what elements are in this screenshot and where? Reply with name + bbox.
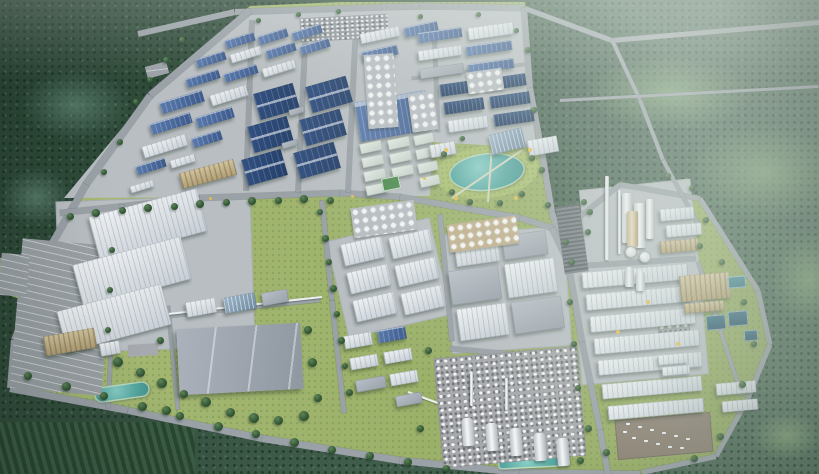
tree <box>529 155 535 161</box>
storage-silo <box>461 418 475 447</box>
preheater-tower <box>627 211 638 247</box>
water-treatment-basin <box>728 275 747 289</box>
chimney <box>505 378 508 410</box>
tree <box>105 327 111 333</box>
tree <box>545 202 551 208</box>
tree <box>113 357 123 367</box>
tree <box>366 452 374 460</box>
south-road <box>520 469 640 474</box>
tank-farm <box>407 91 438 132</box>
tree <box>603 449 610 456</box>
tree <box>176 412 184 420</box>
tree <box>719 259 725 265</box>
tree <box>179 37 185 43</box>
tree <box>138 402 147 411</box>
warehouse <box>448 265 502 306</box>
flower-bed <box>209 197 212 200</box>
chimney <box>470 372 473 406</box>
tree <box>467 199 473 205</box>
flower-bed <box>351 195 354 198</box>
storage-silo <box>509 428 523 457</box>
tree <box>338 337 345 344</box>
tree <box>575 385 581 391</box>
tree <box>201 397 211 407</box>
tree <box>300 195 308 203</box>
tree <box>689 185 695 191</box>
flower-bed <box>676 342 680 346</box>
car <box>632 437 636 439</box>
tree <box>290 438 299 447</box>
tree <box>563 239 569 245</box>
tree <box>342 363 348 369</box>
storage-silo <box>556 438 570 467</box>
tree <box>308 358 317 367</box>
tree <box>133 99 139 105</box>
water-treatment-basin <box>744 329 759 341</box>
meadow-patch <box>20 70 130 140</box>
tree <box>585 425 592 432</box>
tree <box>249 413 259 423</box>
flower-bed <box>444 148 448 152</box>
tree <box>587 209 593 215</box>
tree <box>336 9 341 14</box>
tree <box>334 311 340 317</box>
cooling-equipment-pad <box>128 343 159 357</box>
flower-bed <box>423 177 426 180</box>
tree <box>717 433 724 440</box>
flower-bed <box>528 148 532 152</box>
tree <box>326 259 332 265</box>
tree <box>581 199 587 205</box>
tree <box>163 57 169 63</box>
tree <box>226 408 235 417</box>
tree <box>330 285 337 292</box>
tree <box>162 406 171 415</box>
car <box>668 446 672 448</box>
tree <box>196 200 204 208</box>
car <box>638 426 642 428</box>
tree <box>119 207 126 214</box>
tree <box>180 390 188 398</box>
tree <box>157 337 164 344</box>
meadow-patch <box>752 412 819 460</box>
chimney <box>618 190 621 254</box>
tree <box>569 259 575 265</box>
office-building-tan <box>679 272 731 302</box>
tree <box>476 12 481 17</box>
tree <box>404 458 412 466</box>
flower-bed <box>616 330 620 334</box>
tree <box>539 167 545 173</box>
tree <box>697 243 703 249</box>
car <box>662 432 666 434</box>
tree <box>328 446 336 454</box>
tree <box>299 411 309 421</box>
tree <box>751 341 757 347</box>
tree <box>62 382 71 391</box>
tree <box>136 368 145 377</box>
tree <box>171 203 178 210</box>
tree <box>67 213 74 220</box>
tree <box>531 107 537 113</box>
meadow-patch <box>690 125 819 220</box>
big-gray-warehouse <box>176 323 303 395</box>
flower-bed <box>646 300 650 304</box>
tree <box>425 347 432 354</box>
tree <box>514 28 519 33</box>
tree <box>100 392 108 400</box>
tree <box>147 77 153 83</box>
tree <box>296 12 301 17</box>
tree <box>417 425 424 432</box>
car <box>686 438 690 440</box>
tree <box>665 173 671 179</box>
car <box>644 440 648 442</box>
storage-silo <box>533 433 547 462</box>
tree <box>703 217 709 223</box>
cement-silo <box>636 271 645 291</box>
flower-bed <box>514 196 518 200</box>
cement-silo <box>625 267 634 287</box>
water-treatment-basin <box>727 310 748 327</box>
car <box>626 423 630 425</box>
tree <box>577 457 584 464</box>
tree <box>327 197 334 204</box>
car <box>650 429 654 431</box>
tree-plantation-rows <box>0 422 195 474</box>
tree <box>24 372 32 380</box>
flower-bed <box>454 196 458 200</box>
tree <box>304 326 312 334</box>
tree <box>256 18 261 23</box>
tree <box>317 209 323 215</box>
tree <box>346 389 353 396</box>
car <box>674 435 678 437</box>
tree <box>443 465 450 472</box>
tree <box>248 197 256 205</box>
tree <box>275 197 282 204</box>
tree <box>460 136 465 141</box>
meadow-patch <box>770 235 819 325</box>
tree <box>117 139 123 145</box>
warehouse <box>504 258 558 299</box>
tree <box>314 394 322 402</box>
tree <box>739 381 746 388</box>
parking-lot-southeast <box>614 412 713 460</box>
car <box>623 431 627 433</box>
tree <box>109 247 115 253</box>
cooling-tower <box>625 246 637 258</box>
tree <box>101 169 107 175</box>
storage-silo <box>485 423 499 452</box>
tree <box>585 229 591 235</box>
tree <box>567 299 573 305</box>
water-treatment-basin <box>705 314 726 331</box>
tank-farm <box>363 53 398 129</box>
tree <box>571 341 577 347</box>
tree <box>691 455 698 462</box>
car <box>680 447 684 449</box>
tree <box>223 199 230 206</box>
tree <box>497 200 503 206</box>
industrial-park-aerial-rendering <box>0 0 819 474</box>
chimney <box>605 176 609 260</box>
tree <box>519 191 525 197</box>
preheater-tower <box>646 199 654 239</box>
tree <box>449 189 455 195</box>
tree <box>418 14 423 19</box>
tree <box>322 235 329 242</box>
parking-lot-west-small <box>0 253 30 297</box>
tree <box>107 287 113 293</box>
tree <box>144 204 152 212</box>
tree <box>741 299 747 305</box>
tree <box>214 422 223 431</box>
tree <box>525 47 531 53</box>
cooling-tower <box>639 251 651 263</box>
tree <box>92 209 100 217</box>
tree <box>274 416 283 425</box>
tree <box>252 430 260 438</box>
tree <box>157 378 167 388</box>
car <box>656 443 660 445</box>
